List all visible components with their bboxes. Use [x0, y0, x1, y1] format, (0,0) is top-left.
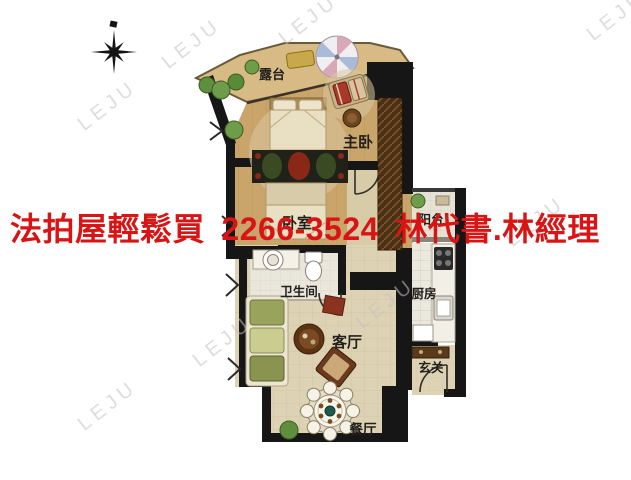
stove: [434, 247, 453, 270]
dining-chair: [301, 405, 314, 418]
bed-runner-dresser: [252, 150, 348, 183]
floorplan-image: LEJU LEJU LEJU LEJU LEJU LEJU LEJU LEJU …: [0, 0, 631, 480]
bathroom-vanity: [253, 250, 299, 270]
dining-chair: [324, 382, 337, 395]
room-label-kitchen: 厨房: [411, 286, 436, 301]
room-label-entrance: 玄关: [418, 360, 444, 375]
room-label-living-room: 客厅: [331, 333, 362, 351]
dining-chair: [307, 421, 320, 434]
dining-chair: [324, 428, 337, 441]
coffee-table: [294, 324, 324, 354]
entrance-console: [412, 347, 449, 358]
compass-rose-icon: [91, 20, 137, 74]
balcony-window: [412, 188, 455, 192]
dining-chair: [307, 388, 320, 401]
fridge: [413, 325, 433, 341]
room-label-dining-room: 餐厅: [349, 421, 377, 437]
ad-text-overlay: 法拍屋輕鬆買 2266-3524 林代書.林經理: [10, 208, 631, 250]
dining-plant: [280, 421, 298, 439]
room-label-master-bedroom: 主卧: [343, 133, 373, 151]
red-side-table: [323, 295, 346, 315]
room-label-bathroom: 卫生间: [280, 284, 318, 299]
balcony-plant: [411, 194, 425, 208]
dining-chair: [340, 388, 353, 401]
room-label-terrace: 露台: [259, 67, 285, 82]
balcony-item: [436, 196, 449, 205]
toilet: [305, 252, 322, 281]
sofa: [246, 296, 288, 386]
dining-chair: [347, 405, 360, 418]
terrace-lounge-chair: [286, 50, 315, 69]
side-table: [343, 109, 361, 127]
